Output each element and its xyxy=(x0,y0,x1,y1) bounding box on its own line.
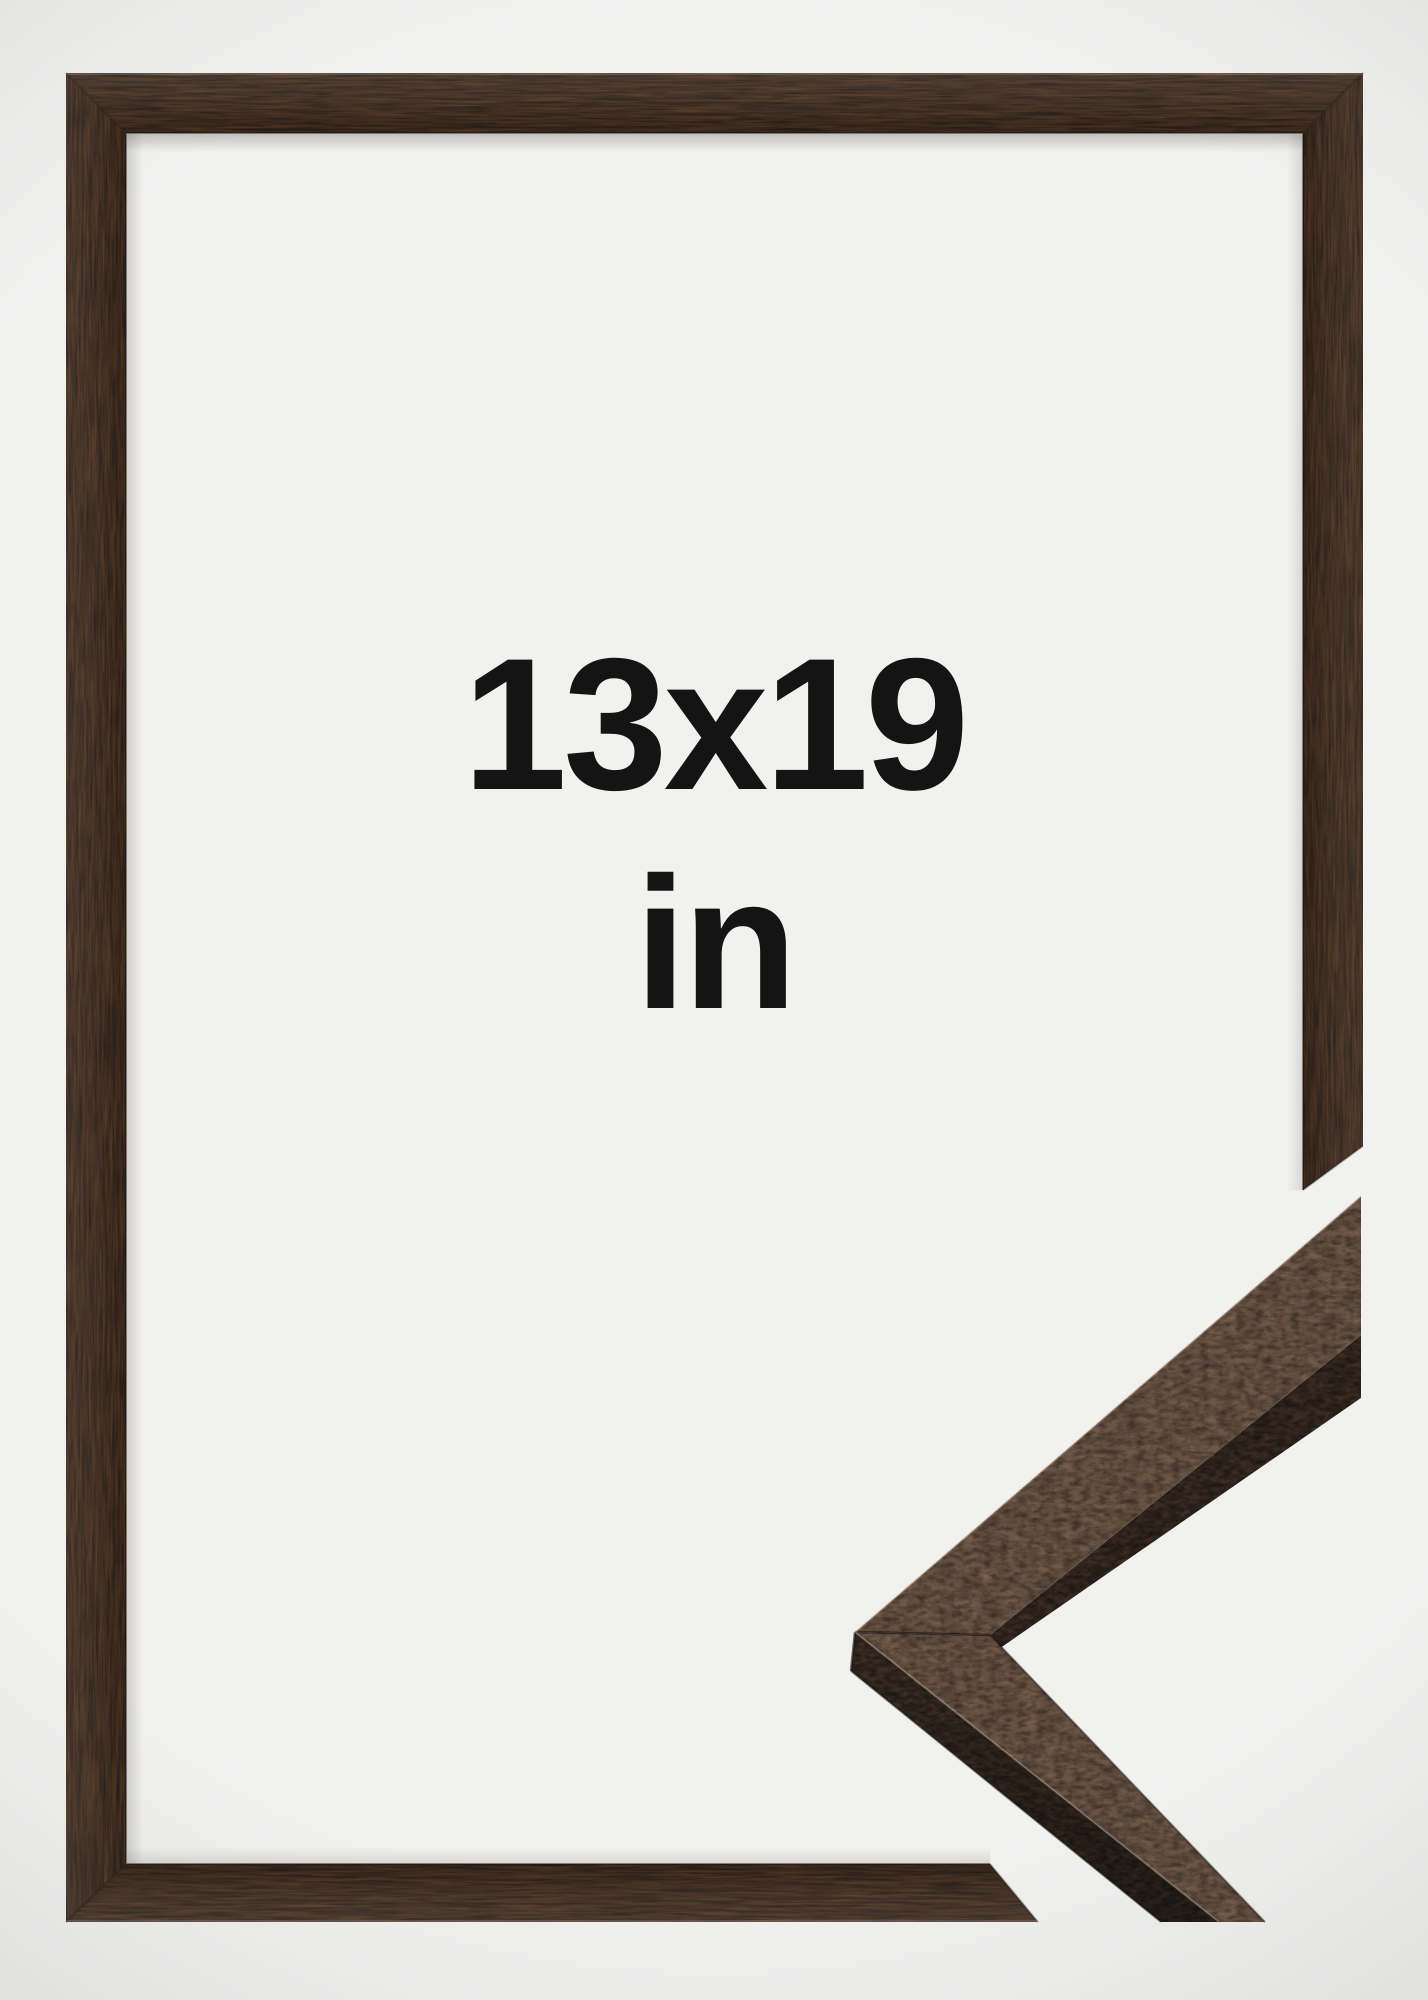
product-image: 13x19 in xyxy=(0,0,1428,2000)
framed-size-illustration: 13x19 in xyxy=(0,0,1428,2000)
vignette-overlay xyxy=(0,0,1428,2000)
